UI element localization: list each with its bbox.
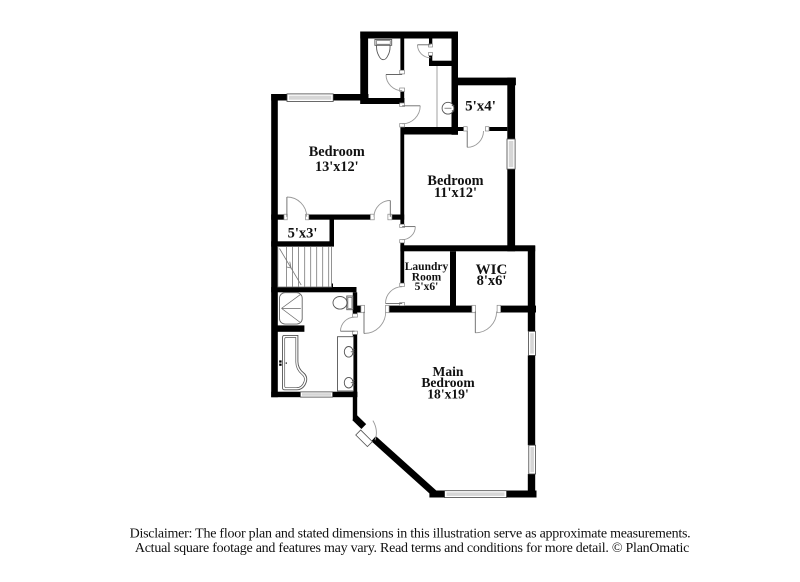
svg-text:8'x6': 8'x6' [477,273,507,289]
svg-text:5'x3': 5'x3' [288,225,318,241]
svg-text:5'x6': 5'x6' [415,281,439,293]
svg-text:Bedroom: Bedroom [309,144,365,160]
svg-text:Disclaimer: The floor plan and: Disclaimer: The floor plan and stated di… [130,526,691,541]
svg-text:Actual square footage and feat: Actual square footage and features may v… [135,541,689,556]
svg-text:13'x12': 13'x12' [315,159,359,175]
svg-text:11'x12': 11'x12' [434,185,477,201]
svg-text:5'x4': 5'x4' [465,99,496,115]
svg-text:18'x19': 18'x19' [427,387,469,402]
